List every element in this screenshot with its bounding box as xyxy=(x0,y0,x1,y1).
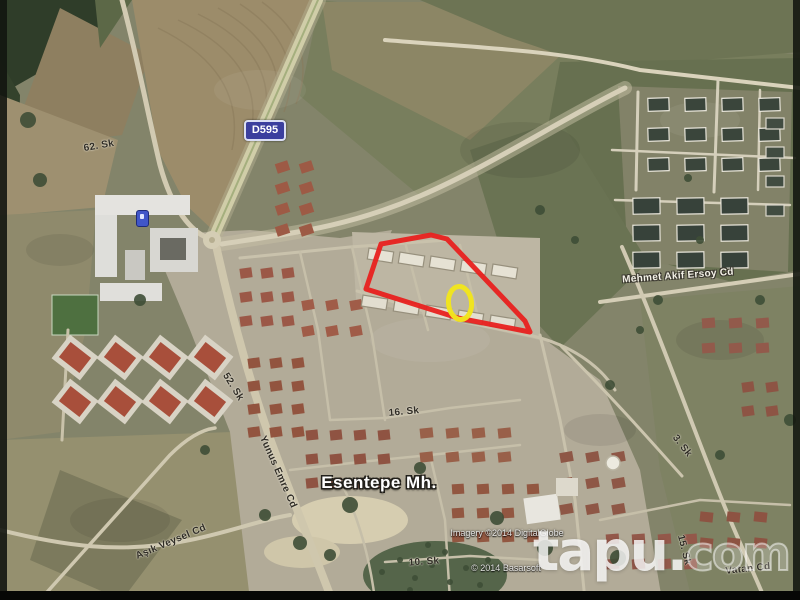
building xyxy=(729,318,743,329)
tree xyxy=(134,294,146,306)
tree xyxy=(684,174,692,182)
building xyxy=(722,128,743,142)
building xyxy=(741,381,754,393)
tree xyxy=(605,380,615,390)
building xyxy=(239,291,252,303)
tree xyxy=(33,173,47,187)
building xyxy=(281,291,294,303)
tree xyxy=(397,557,403,563)
building xyxy=(260,267,273,279)
building xyxy=(677,198,704,214)
tree xyxy=(490,511,504,525)
route-badge-d595: D595 xyxy=(244,120,286,141)
building xyxy=(756,343,770,354)
building xyxy=(291,426,304,438)
tree xyxy=(200,445,210,455)
building xyxy=(349,299,363,311)
watermark-dot: . xyxy=(667,519,686,583)
building xyxy=(446,427,460,438)
building xyxy=(269,426,282,438)
mapdata-attribution: © 2014 Basarsoft xyxy=(471,563,541,573)
tree xyxy=(259,509,271,521)
building xyxy=(446,451,460,462)
building xyxy=(306,453,319,464)
building xyxy=(756,318,770,329)
tree xyxy=(571,236,579,244)
building xyxy=(472,427,486,438)
building xyxy=(765,405,778,417)
building xyxy=(677,252,704,268)
tree xyxy=(653,295,663,305)
tree xyxy=(324,549,336,561)
building xyxy=(721,252,748,268)
building xyxy=(721,198,748,214)
building xyxy=(452,484,465,495)
building xyxy=(685,98,706,112)
watermark-brand: tapu xyxy=(533,519,667,583)
tree xyxy=(755,295,765,305)
building xyxy=(721,225,748,241)
building xyxy=(420,451,434,462)
building xyxy=(260,315,273,327)
letterbox-left xyxy=(0,0,7,600)
building xyxy=(766,147,784,158)
building xyxy=(633,225,660,241)
building xyxy=(722,158,743,172)
tree xyxy=(463,565,469,571)
tree xyxy=(20,112,36,128)
building xyxy=(325,325,339,337)
building xyxy=(527,484,540,495)
building xyxy=(354,429,367,440)
building xyxy=(727,511,741,522)
building xyxy=(349,325,363,337)
satellite-map-image[interactable]: D595 62. Sk52. SkYunus Emre Cd16. Sk10. … xyxy=(0,0,800,600)
building xyxy=(472,451,486,462)
building xyxy=(729,343,743,354)
building xyxy=(269,403,282,415)
building xyxy=(325,299,339,311)
tree xyxy=(535,205,545,215)
building xyxy=(291,357,304,369)
tree xyxy=(293,536,307,550)
tree xyxy=(696,236,704,244)
building xyxy=(502,484,515,495)
building xyxy=(648,128,669,142)
building xyxy=(741,405,754,417)
building xyxy=(378,453,391,464)
neighborhood-label: Esentepe Mh. xyxy=(321,473,437,493)
building xyxy=(477,484,490,495)
satellite-imagery xyxy=(0,0,800,600)
building xyxy=(765,381,778,393)
building xyxy=(498,451,512,462)
building xyxy=(247,403,260,415)
building xyxy=(759,158,780,172)
building xyxy=(378,429,391,440)
tree xyxy=(447,579,453,585)
building xyxy=(452,508,465,519)
building xyxy=(301,325,315,337)
building xyxy=(281,267,294,279)
building xyxy=(633,198,660,214)
building xyxy=(247,426,260,438)
building xyxy=(702,343,716,354)
building xyxy=(239,267,252,279)
building xyxy=(648,98,669,112)
building xyxy=(330,429,343,440)
building xyxy=(685,128,706,142)
tree xyxy=(442,549,448,555)
building xyxy=(754,511,768,522)
building xyxy=(477,508,490,519)
building xyxy=(301,299,315,311)
tapu-com-watermark: tapu.com xyxy=(533,524,789,579)
tree xyxy=(429,562,435,568)
building xyxy=(633,252,660,268)
building xyxy=(247,380,260,392)
tree xyxy=(425,542,431,548)
building xyxy=(420,427,434,438)
tree xyxy=(636,326,644,334)
tree xyxy=(477,582,483,588)
building xyxy=(239,315,252,327)
building xyxy=(759,128,780,142)
building xyxy=(766,176,784,187)
building xyxy=(260,291,273,303)
building xyxy=(685,158,706,172)
building xyxy=(702,318,716,329)
building xyxy=(291,380,304,392)
tree xyxy=(412,575,418,581)
building xyxy=(269,380,282,392)
building xyxy=(759,98,780,112)
building xyxy=(306,477,319,488)
building xyxy=(700,511,714,522)
watermark-tld: com xyxy=(686,527,789,582)
building xyxy=(291,403,304,415)
building xyxy=(247,357,260,369)
building xyxy=(648,158,669,172)
building xyxy=(354,453,367,464)
building xyxy=(766,118,784,129)
building xyxy=(269,357,282,369)
building xyxy=(330,453,343,464)
building xyxy=(306,429,319,440)
building xyxy=(498,427,512,438)
building xyxy=(722,98,743,112)
tree xyxy=(342,497,358,513)
letterbox-right xyxy=(793,0,800,600)
poi-marker-icon xyxy=(136,210,149,227)
building xyxy=(281,315,294,327)
building xyxy=(766,205,784,216)
tree xyxy=(715,450,725,460)
letterbox-bottom xyxy=(0,591,800,600)
tree xyxy=(379,569,385,575)
